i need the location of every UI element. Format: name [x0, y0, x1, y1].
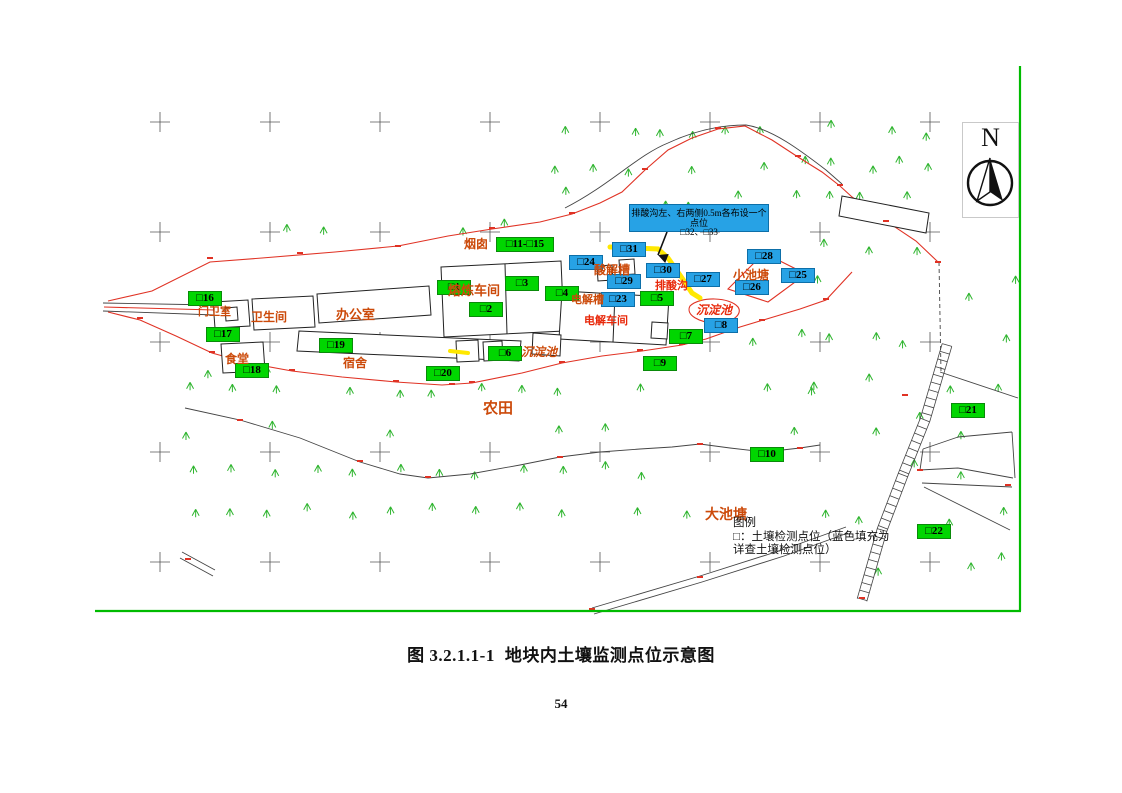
map-label: 办公室	[336, 304, 375, 323]
map-label: 电解槽	[571, 291, 604, 307]
soil-point-19: □19	[319, 338, 353, 353]
soil-point-28: □28	[747, 249, 781, 264]
map-label: 农田	[483, 397, 513, 418]
map-label: 酸解槽	[594, 261, 630, 278]
ditch-points-callout: 排酸沟左、右两侧0.5m各布设一个点位 □32、□33	[629, 204, 769, 232]
hatched-road	[857, 344, 952, 602]
soil-point-6: □6	[488, 346, 522, 361]
soil-point-5: □5	[640, 291, 674, 306]
soil-point-31: □31	[612, 242, 646, 257]
soil-point-2: □2	[469, 302, 503, 317]
map-label: 食堂	[225, 350, 249, 367]
figure-number: 图 3.2.1.1-1	[407, 646, 495, 665]
soil-point-30: □30	[646, 263, 680, 278]
north-arrow: N	[962, 122, 1019, 218]
north-label: N	[963, 125, 1018, 151]
soil-point-23: □23	[601, 292, 635, 307]
map-label: 沉淀池	[521, 343, 557, 360]
callout-line2: □32、□33	[630, 228, 768, 238]
map-label: 电解车间	[584, 312, 628, 328]
legend-title: 图例	[733, 517, 923, 531]
soil-point-7: □7	[669, 329, 703, 344]
soil-point-21: □21	[951, 403, 985, 418]
soil-point-10: □10	[750, 447, 784, 462]
map-label: 门卫室	[198, 303, 231, 319]
soil-point-25: □25	[781, 268, 815, 283]
report-page: □1□2□3□4□5□6□7□8□9□10□11-□15□16□17□18□19…	[0, 0, 1122, 793]
soil-point-20: □20	[426, 366, 460, 381]
page-number: 54	[0, 696, 1122, 712]
map-label: 宿舍	[343, 354, 367, 371]
map-label: 小池塘	[733, 266, 769, 283]
compass-icon	[963, 151, 1018, 213]
map-label: 沉淀池	[696, 301, 732, 318]
map-label: 排酸沟	[655, 277, 688, 293]
legend: 图例 □：土壤检测点位（蓝色填充为 详查土壤检测点位）	[733, 517, 923, 558]
figure-caption: 图 3.2.1.1-1地块内土壤监测点位示意图	[0, 641, 1122, 666]
map-label: 熔炼车间	[448, 280, 500, 299]
map-label: 烟囱	[464, 235, 488, 252]
soil-point-27: □27	[686, 272, 720, 287]
soil-point-9: □9	[643, 356, 677, 371]
legend-line1: □：土壤检测点位（蓝色填充为	[733, 531, 923, 545]
callout-line1: 排酸沟左、右两侧0.5m各布设一个点位	[630, 209, 768, 228]
soil-point-3: □3	[505, 276, 539, 291]
legend-line2: 详查土壤检测点位）	[733, 544, 923, 558]
soil-point-17: □17	[206, 327, 240, 342]
soil-point-8: □8	[704, 318, 738, 333]
site-map-drawing	[0, 0, 1122, 793]
figure-title: 地块内土壤监测点位示意图	[505, 646, 715, 665]
map-label: 卫生间	[251, 308, 287, 325]
soil-point-11-15: □11-□15	[496, 237, 554, 252]
